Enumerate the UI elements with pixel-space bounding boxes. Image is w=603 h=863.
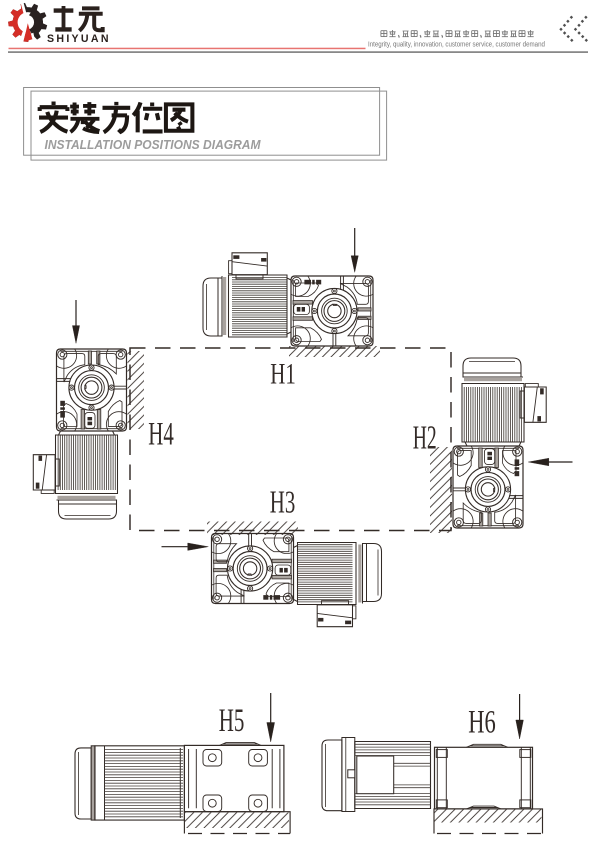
svg-text:H4: H4 (148, 417, 174, 453)
svg-text:Integrity, quality, innovation: Integrity, quality, innovation, customer… (368, 42, 545, 49)
svg-text:INSTALLATION POSITIONS DIAGRAM: INSTALLATION POSITIONS DIAGRAM (45, 137, 261, 152)
svg-text:H2: H2 (413, 420, 437, 457)
svg-text:H5: H5 (219, 703, 245, 739)
svg-text:H6: H6 (468, 705, 496, 741)
svg-text:H3: H3 (270, 484, 296, 520)
svg-text:H1: H1 (270, 358, 296, 391)
svg-text:SHIYUAN: SHIYUAN (47, 33, 111, 45)
